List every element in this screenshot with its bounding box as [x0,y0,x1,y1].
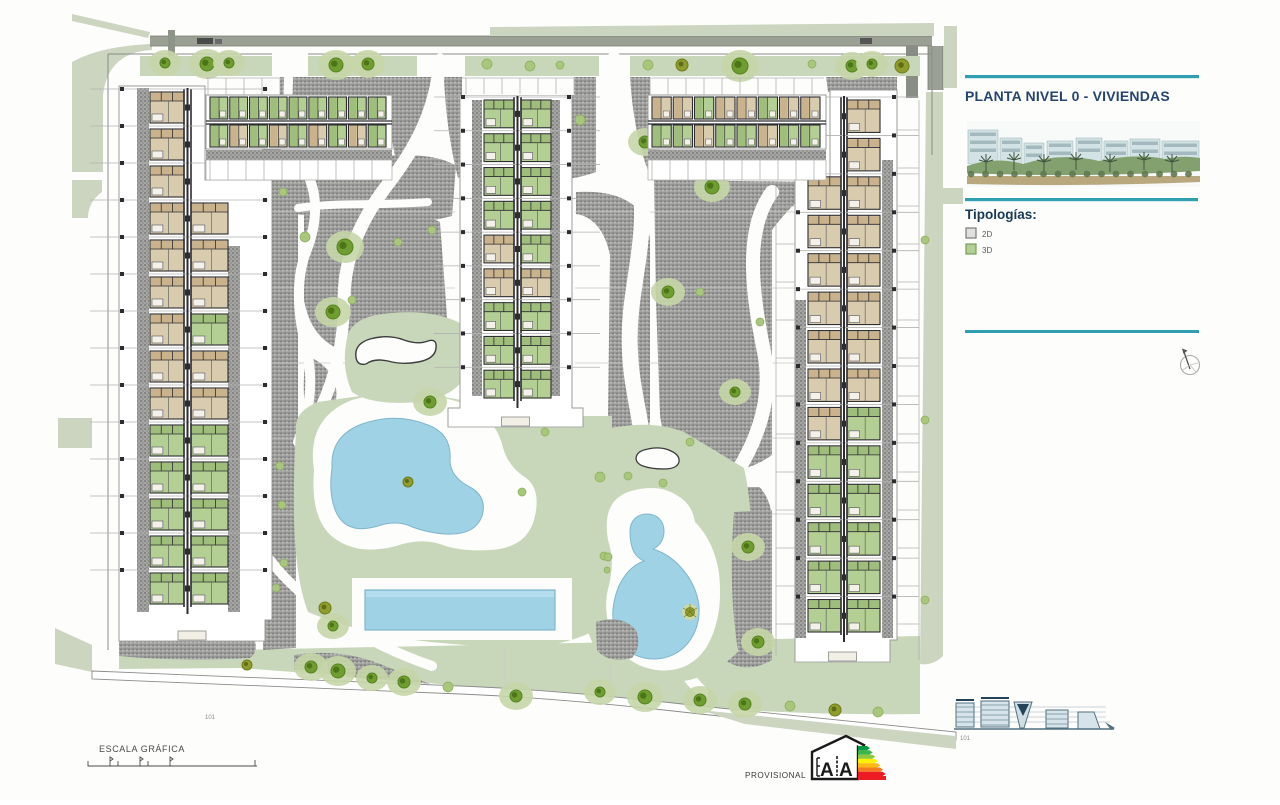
svg-text:ESCALA GRÁFICA: ESCALA GRÁFICA [99,744,185,754]
svg-text:101: 101 [960,736,971,742]
svg-text:3D: 3D [982,246,992,255]
svg-text:2D: 2D [982,230,992,239]
svg-text:A: A [839,760,853,781]
svg-text:A: A [820,760,834,781]
svg-text:Tipologías:: Tipologías: [965,207,1037,222]
svg-text:PLANTA NIVEL 0 - VIVIENDAS: PLANTA NIVEL 0 - VIVIENDAS [965,88,1170,104]
svg-text:PROVISIONAL: PROVISIONAL [745,771,806,780]
svg-text:101: 101 [205,715,216,721]
